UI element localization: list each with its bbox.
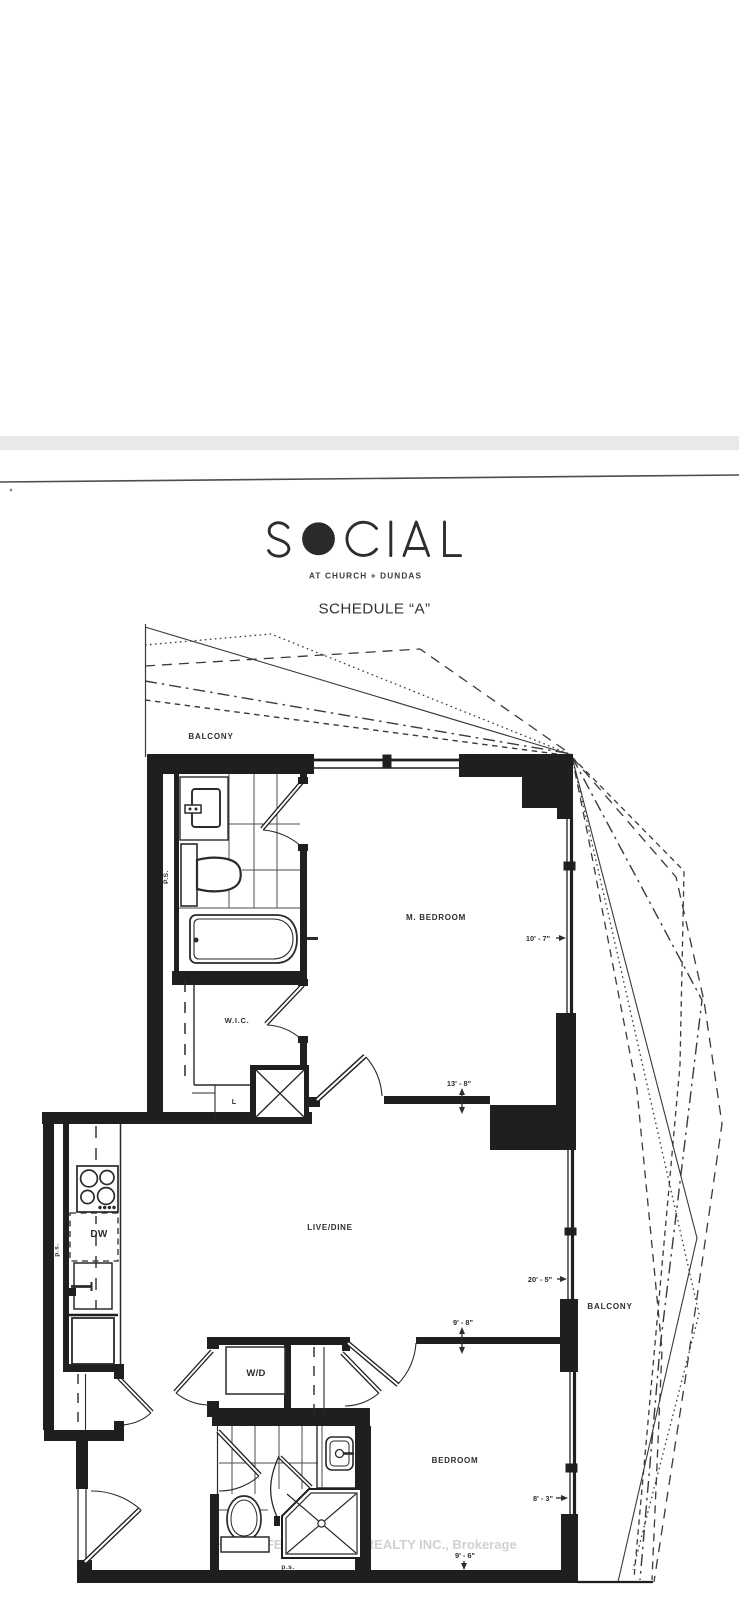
svg-text:BEDROOM: BEDROOM bbox=[432, 1456, 479, 1465]
svg-text:13' - 8": 13' - 8" bbox=[447, 1079, 472, 1088]
svg-text:p.s.: p.s. bbox=[54, 1243, 61, 1256]
svg-text:20' - 5": 20' - 5" bbox=[528, 1275, 553, 1284]
svg-text:AT CHURCH + DUNDAS: AT CHURCH + DUNDAS bbox=[309, 572, 422, 581]
svg-text:M. BEDROOM: M. BEDROOM bbox=[406, 913, 466, 922]
svg-text:8' - 3": 8' - 3" bbox=[533, 1494, 554, 1503]
svg-text:L: L bbox=[232, 1097, 237, 1106]
svg-text:9' - 6": 9' - 6" bbox=[455, 1551, 476, 1560]
svg-text:W/D: W/D bbox=[246, 1368, 265, 1379]
svg-text:LIVE/DINE: LIVE/DINE bbox=[307, 1223, 352, 1232]
svg-text:DW: DW bbox=[90, 1229, 108, 1240]
svg-text:W.I.C.: W.I.C. bbox=[225, 1016, 250, 1025]
svg-text:9' - 8": 9' - 8" bbox=[453, 1318, 474, 1327]
svg-text:BALCONY: BALCONY bbox=[587, 1302, 632, 1311]
svg-text:SCHEDULE “A”: SCHEDULE “A” bbox=[319, 601, 431, 618]
svg-text:p.s.: p.s. bbox=[281, 1564, 294, 1571]
svg-text:10' - 7": 10' - 7" bbox=[526, 934, 551, 943]
svg-text:BALCONY: BALCONY bbox=[188, 732, 233, 741]
svg-text:P.S.: P.S. bbox=[163, 870, 170, 884]
